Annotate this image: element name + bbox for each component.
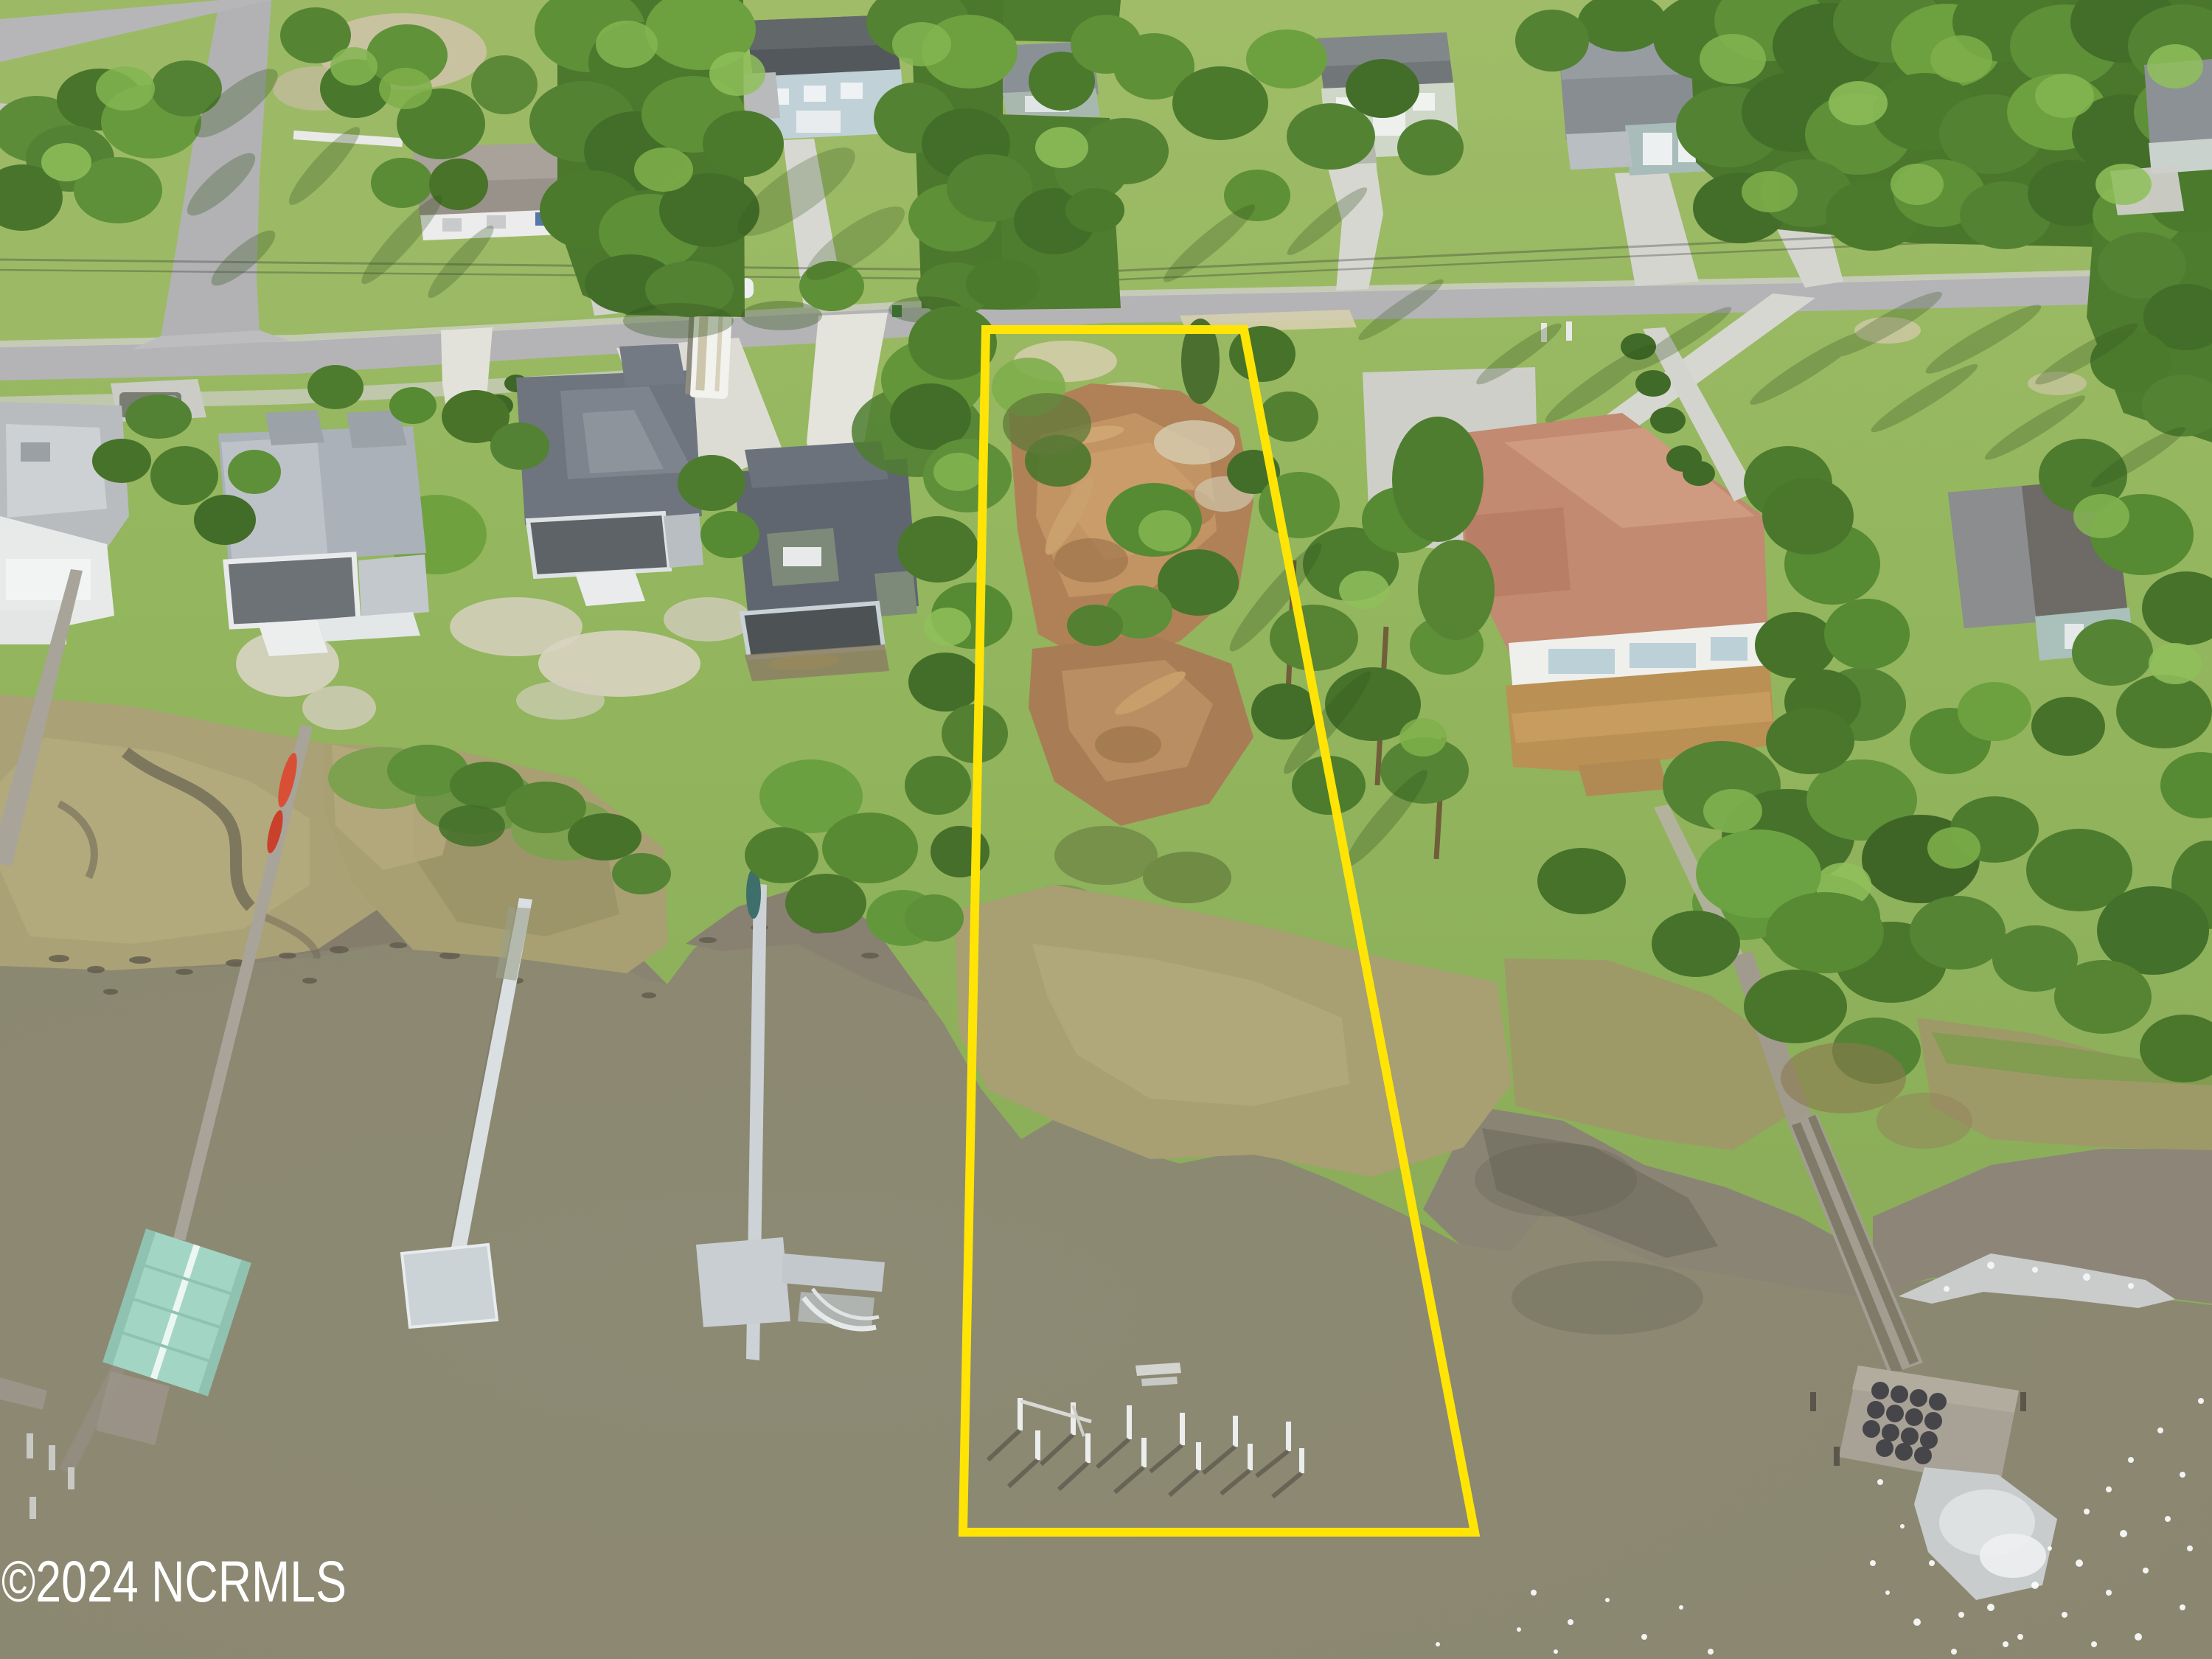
- svg-text:©2024 NCRMLS: ©2024 NCRMLS: [1, 1548, 347, 1614]
